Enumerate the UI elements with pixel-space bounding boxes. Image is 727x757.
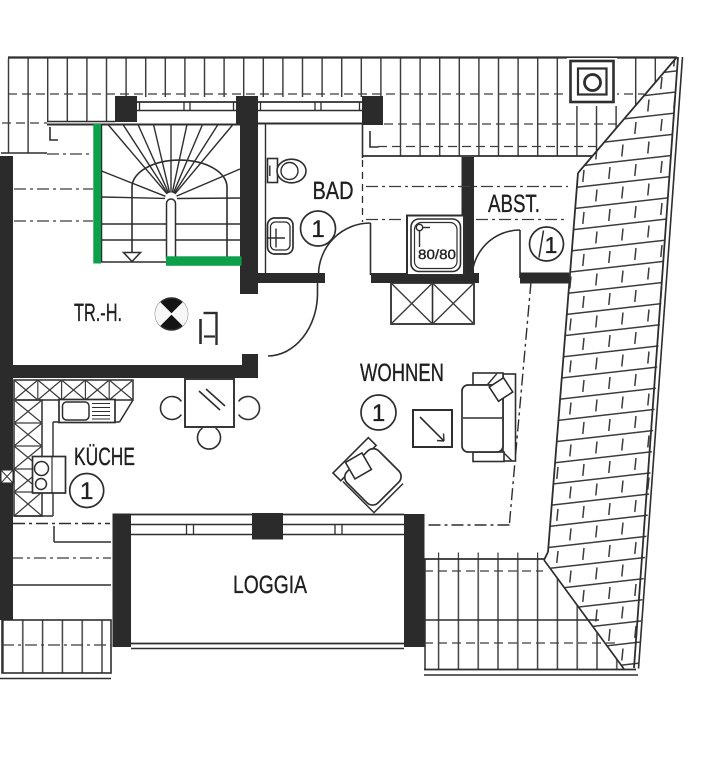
svg-text:KÜCHE: KÜCHE [74,443,135,471]
svg-text:BAD: BAD [313,177,354,205]
svg-text:1: 1 [80,478,93,505]
svg-text:ABST.: ABST. [488,190,540,218]
svg-text:1: 1 [311,216,324,243]
svg-text:80/80: 80/80 [418,247,456,262]
svg-text:TR.-H.: TR.-H. [74,299,122,327]
svg-text:LOGGIA: LOGGIA [233,571,307,599]
svg-text:WOHNEN: WOHNEN [360,359,444,387]
svg-text:1: 1 [545,232,558,258]
svg-text:1: 1 [372,400,385,427]
